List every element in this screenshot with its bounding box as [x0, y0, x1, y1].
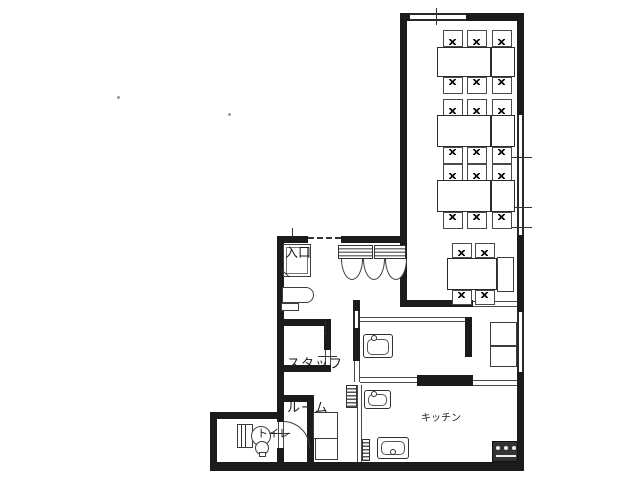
stove-icon: [492, 441, 518, 462]
chair: [443, 77, 463, 94]
wall-segment: [210, 412, 217, 471]
chair: [443, 99, 463, 116]
chair: [492, 99, 512, 116]
stool-chair: [341, 259, 363, 280]
wall-segment: [341, 236, 400, 243]
counter-bench: [338, 245, 373, 259]
wall-stub: [465, 317, 472, 357]
dining-table: [437, 180, 491, 212]
chair: [443, 164, 463, 181]
entrance-bench: [282, 287, 314, 303]
dining-table: [491, 47, 515, 77]
chair: [492, 30, 512, 47]
faucet-icon: [390, 449, 396, 455]
toilet-tank-line: [241, 425, 242, 447]
stool-chair: [363, 259, 385, 280]
bench-seat: [490, 346, 517, 367]
window-tick: [509, 227, 532, 228]
dimension-tick: [292, 228, 293, 238]
chair: [475, 243, 495, 258]
wall-segment: [210, 412, 284, 419]
chair: [443, 147, 463, 164]
scan-speck: [117, 96, 120, 99]
window: [410, 13, 466, 21]
chair: [475, 290, 495, 305]
chair: [492, 164, 512, 181]
window-tick: [509, 157, 532, 158]
cabinet: [313, 412, 338, 439]
toilet-label: トイレ: [257, 428, 290, 440]
entrance-shelf: [281, 303, 299, 311]
wall-segment: [210, 462, 524, 471]
pass-through-counter: [360, 377, 417, 383]
bench-seat: [490, 322, 517, 346]
chair: [467, 99, 487, 116]
chair: [492, 147, 512, 164]
wall-segment: [353, 328, 360, 361]
dining-table: [491, 180, 515, 212]
kitchen-label: キッチン: [421, 413, 461, 424]
counter-bench: [374, 245, 406, 259]
staff-room-label-line1: スタッフ: [287, 358, 343, 373]
window: [517, 312, 524, 372]
pass-through-counter: [473, 380, 517, 386]
cabinet: [315, 438, 338, 460]
sink-basin: [367, 339, 389, 355]
wall-segment: [517, 13, 524, 115]
chair: [467, 164, 487, 181]
shelf-hatch: [362, 439, 370, 461]
wall-segment: [417, 375, 473, 386]
faucet-icon: [371, 391, 377, 397]
chair: [492, 77, 512, 94]
dining-table: [437, 115, 491, 147]
wall-segment: [277, 319, 331, 326]
chair: [467, 212, 487, 229]
dining-table: [437, 47, 491, 77]
shelf-hatch: [346, 385, 357, 408]
chair: [467, 30, 487, 47]
wall-segment: [517, 372, 524, 471]
chair: [443, 30, 463, 47]
window-tick: [436, 8, 437, 25]
chair: [452, 290, 472, 305]
wall-segment: [517, 235, 524, 307]
dining-table: [491, 115, 515, 147]
chair: [452, 243, 472, 258]
chair: [467, 147, 487, 164]
hand-basin-drain: [259, 452, 266, 457]
chair: [492, 212, 512, 229]
toilet-tank-line: [245, 425, 246, 447]
entrance-label: 入口: [285, 247, 311, 262]
dining-table: [447, 258, 497, 290]
window: [517, 115, 524, 235]
chair: [467, 77, 487, 94]
entrance-opening-dashed: [308, 237, 341, 239]
window: [353, 311, 360, 328]
scan-speck: [228, 113, 231, 116]
chair: [443, 212, 463, 229]
counter-line: [360, 317, 466, 322]
floor-plan: 入口 スタッフ ルーム キッチン トイレ: [0, 0, 640, 480]
wall-segment: [277, 448, 284, 462]
wall-segment: [353, 300, 360, 311]
wall-segment: [466, 13, 524, 21]
faucet-icon: [371, 335, 377, 341]
side-table: [497, 257, 514, 292]
